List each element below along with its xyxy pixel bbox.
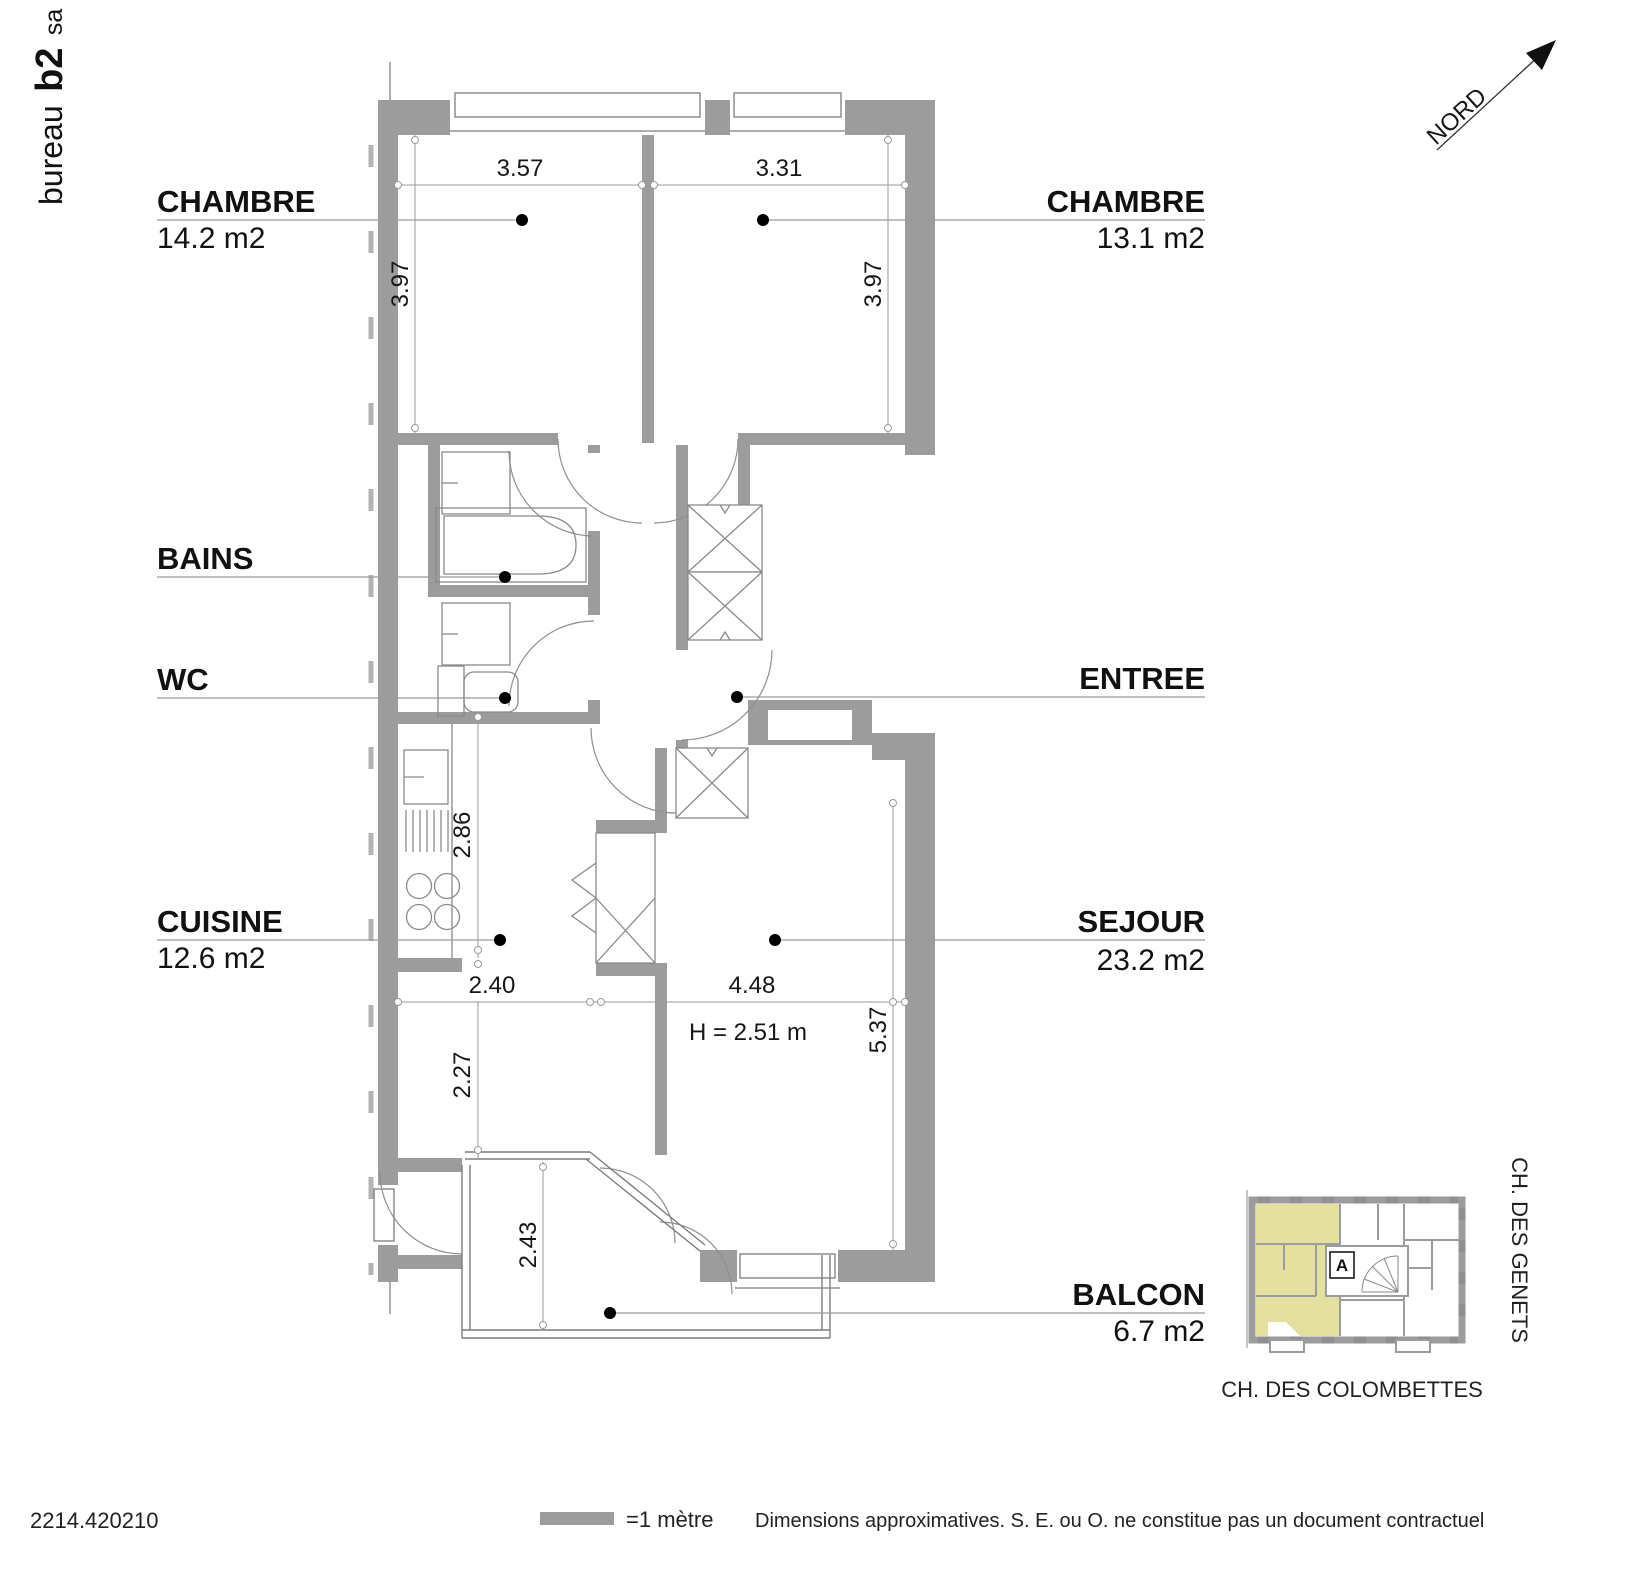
dim-sejour-depth: 5.37: [865, 1007, 892, 1054]
room-label-balcon: BALCON: [1072, 1277, 1205, 1312]
disclaimer-text: Dimensions approximatives. S. E. ou O. n…: [755, 1510, 1484, 1532]
room-area-balcon: 6.7 m2: [1113, 1315, 1205, 1348]
street-label-genets: CH. DES GENETS: [1507, 1157, 1532, 1343]
north-label: NORD: [1422, 83, 1492, 151]
plan-reference: 2214.420210: [30, 1508, 158, 1533]
dim-balcon-depth: 2.43: [515, 1222, 542, 1269]
room-label-sejour: SEJOUR: [1078, 904, 1205, 939]
room-label-entree: ENTREE: [1079, 661, 1205, 696]
windows: [374, 93, 845, 1288]
dim-chambre2-width: 3.31: [756, 155, 803, 182]
brand-logo: bureau b2 sa: [29, 9, 71, 205]
dim-cuisine-depth: 2.86: [449, 812, 476, 859]
dim-chambre1-width: 3.57: [497, 155, 544, 182]
room-label-bains: BAINS: [157, 541, 253, 576]
inset-unit-label: A: [1336, 1256, 1348, 1275]
ceiling-height-label: H = 2.51 m: [689, 1019, 807, 1046]
dim-cuisine-lower-depth: 2.27: [449, 1052, 476, 1099]
room-label-wc: WC: [157, 662, 209, 697]
dim-cuisine-width: 2.40: [469, 972, 516, 999]
room-area-sejour: 23.2 m2: [1097, 944, 1205, 977]
brand-prefix: bureau: [33, 105, 69, 205]
brand-suffix: sa: [40, 9, 68, 36]
kitchen-fixtures: [404, 724, 655, 963]
walls: [378, 100, 935, 1282]
room-area-chambre-1: 14.2 m2: [157, 222, 265, 255]
brand-bold: b2: [29, 48, 71, 92]
dim-chambre1-depth: 3.97: [387, 261, 414, 308]
dim-chambre2-depth: 3.97: [860, 261, 887, 308]
room-label-chambre-1: CHAMBRE: [157, 184, 315, 219]
dim-sejour-width: 4.48: [729, 972, 776, 999]
site-plan-inset: [1247, 1190, 1462, 1352]
floor-plan-page: 3.57 3.31 3.97 3.97 2.86 2.40 4.48 2.27 …: [0, 0, 1631, 1583]
room-area-cuisine: 12.6 m2: [157, 942, 265, 975]
wardrobes: [676, 505, 762, 818]
scale-bar: [540, 1512, 614, 1525]
room-label-cuisine: CUISINE: [157, 904, 283, 939]
room-area-chambre-2: 13.1 m2: [1097, 222, 1205, 255]
bathroom-fixtures: [436, 452, 586, 716]
room-label-chambre-2: CHAMBRE: [1047, 184, 1205, 219]
scale-label: =1 mètre: [626, 1507, 713, 1532]
street-label-colombettes: CH. DES COLOMBETTES: [1221, 1377, 1483, 1402]
floor-plan-svg: 3.57 3.31 3.97 3.97 2.86 2.40 4.48 2.27 …: [0, 0, 1631, 1583]
